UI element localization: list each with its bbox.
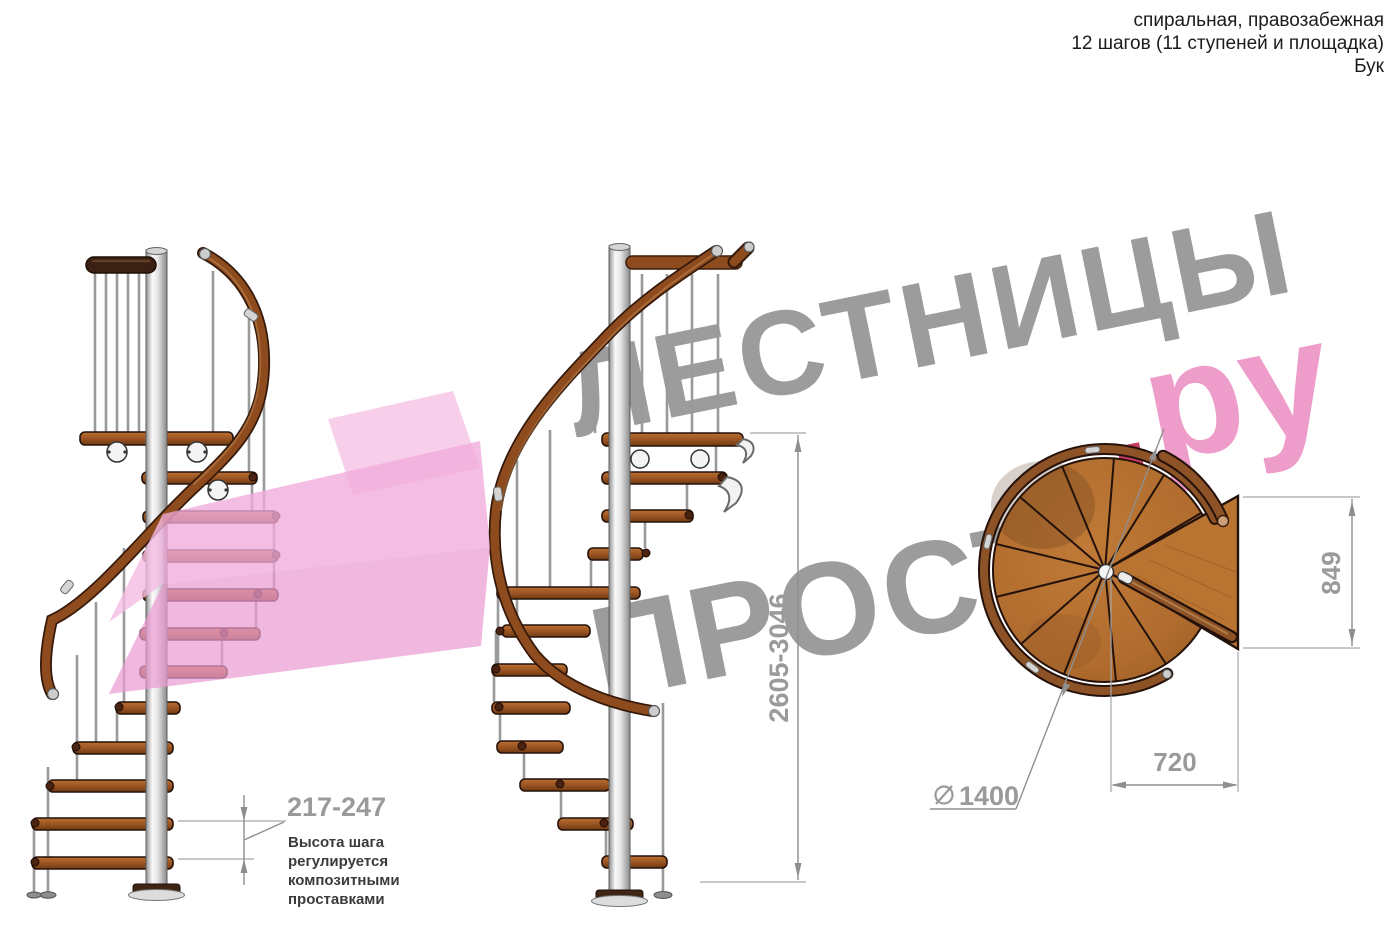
left-top-handrail — [86, 257, 156, 273]
dimension-step-height: 217-247 Высота шага регулируется компози… — [178, 792, 400, 908]
middle-center-pole — [609, 246, 630, 896]
title-line-steps: 12 шагов (11 ступеней и площадка) — [1071, 32, 1384, 55]
svg-text:композитными: композитными — [288, 872, 400, 889]
title-block: спиральная, правозабежная 12 шагов (11 с… — [1071, 9, 1384, 78]
dimension-plan-depth: 849 — [1243, 497, 1360, 648]
title-line-type: спиральная, правозабежная — [1071, 9, 1384, 32]
title-line-material: Бук — [1071, 55, 1384, 78]
staircase-drawing: 2605-3046 217-247 Высота шага регулирует… — [0, 0, 1400, 930]
drawing-canvas: ЛЕСТНИЦЫ ПРОСТО .ру — [0, 0, 1400, 930]
svg-text:проставками: проставками — [288, 891, 385, 908]
svg-text:720: 720 — [1153, 747, 1196, 777]
plan-rail-end-cap — [1163, 670, 1172, 679]
dimension-total-height: 2605-3046 — [700, 433, 806, 882]
svg-text:Высота шага: Высота шага — [288, 834, 385, 851]
svg-text:2605-3046: 2605-3046 — [764, 593, 794, 722]
svg-text:1400: 1400 — [959, 781, 1019, 811]
middle-elevation-view — [492, 242, 754, 907]
svg-text:217-247: 217-247 — [287, 792, 386, 822]
svg-text:регулируется: регулируется — [288, 853, 388, 870]
svg-text:849: 849 — [1316, 551, 1346, 594]
